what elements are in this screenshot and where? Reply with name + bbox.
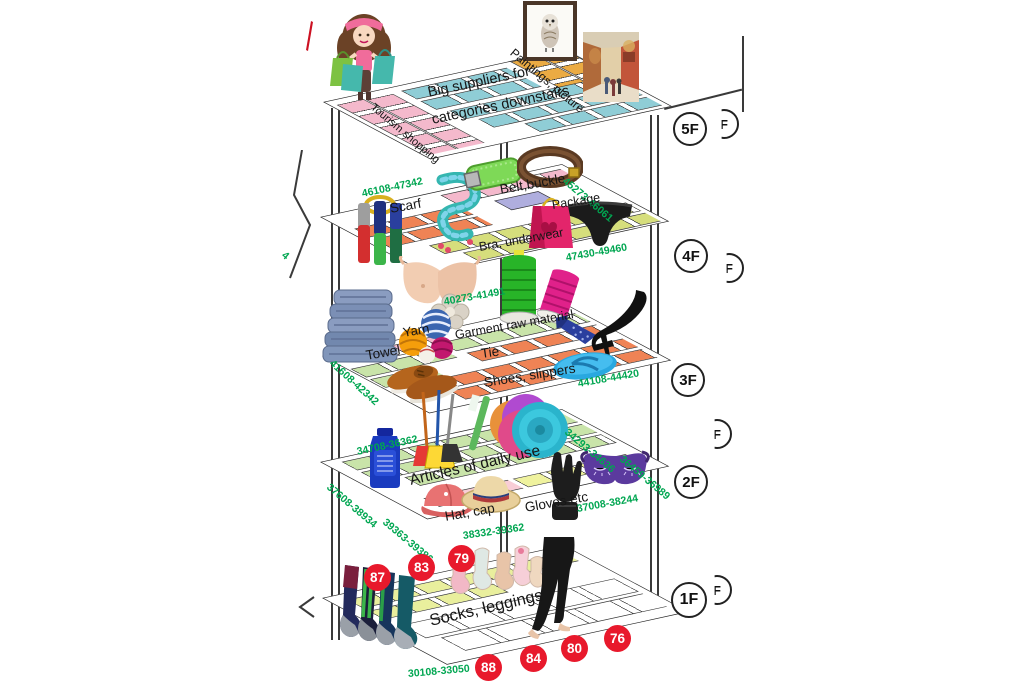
- floor-label-4f: 4F: [674, 239, 708, 273]
- floor-label-text: F: [720, 117, 728, 132]
- floor-label-text: F: [713, 583, 721, 598]
- floor-label-text: 5F: [681, 121, 699, 138]
- floor-label-text: 3F: [679, 372, 697, 389]
- floor-label-1f: 1F: [671, 582, 707, 618]
- stall-number-badge: 80: [561, 635, 588, 662]
- red-mark: [303, 20, 315, 52]
- area-label-tie: Tie: [480, 344, 500, 361]
- building-column: [742, 36, 744, 112]
- stall-number-badge: 83: [408, 554, 435, 581]
- stall-number-badge: 87: [364, 564, 391, 591]
- badge-text: 87: [370, 570, 385, 585]
- wholesale-market-floor-map: 5F F 4F F 3F F 2F 1F F Big suppliers for…: [0, 0, 1024, 683]
- badge-text: 88: [481, 660, 496, 675]
- floor-label-2f: 2F: [674, 465, 708, 499]
- street-painting: [583, 32, 639, 102]
- floor-label-partial: F: [702, 419, 732, 449]
- floor-label-text: 2F: [682, 474, 700, 491]
- floor-label-text: F: [725, 261, 733, 276]
- floor-label-text: 1F: [680, 591, 699, 609]
- left-break-mark: [282, 150, 316, 280]
- left-arrow-mark: [298, 596, 316, 618]
- stall-range: 30108-33050: [407, 663, 470, 680]
- badge-text: 80: [567, 641, 582, 656]
- building-column: [331, 108, 333, 640]
- badge-text: 83: [414, 560, 429, 575]
- owl-painting: [522, 0, 578, 62]
- badge-text: 76: [610, 631, 625, 646]
- badge-text: 84: [526, 651, 541, 666]
- stall-number-badge: 84: [520, 645, 547, 672]
- floor-label-5f: 5F: [673, 112, 707, 146]
- stall-number-badge: 76: [604, 625, 631, 652]
- brooms: [405, 390, 465, 472]
- shopping-girl: [325, 8, 403, 108]
- stall-number-badge: 88: [475, 654, 502, 681]
- roof-edge-line: [664, 89, 742, 110]
- floor-label-partial: F: [714, 253, 744, 283]
- floor-label-text: F: [713, 427, 721, 442]
- badge-text: 79: [454, 551, 469, 566]
- floor-label-3f: 3F: [671, 363, 705, 397]
- floor-label-partial: F: [709, 109, 739, 139]
- floor-label-text: 4F: [682, 248, 700, 265]
- stall-number-badge: 79: [448, 545, 475, 572]
